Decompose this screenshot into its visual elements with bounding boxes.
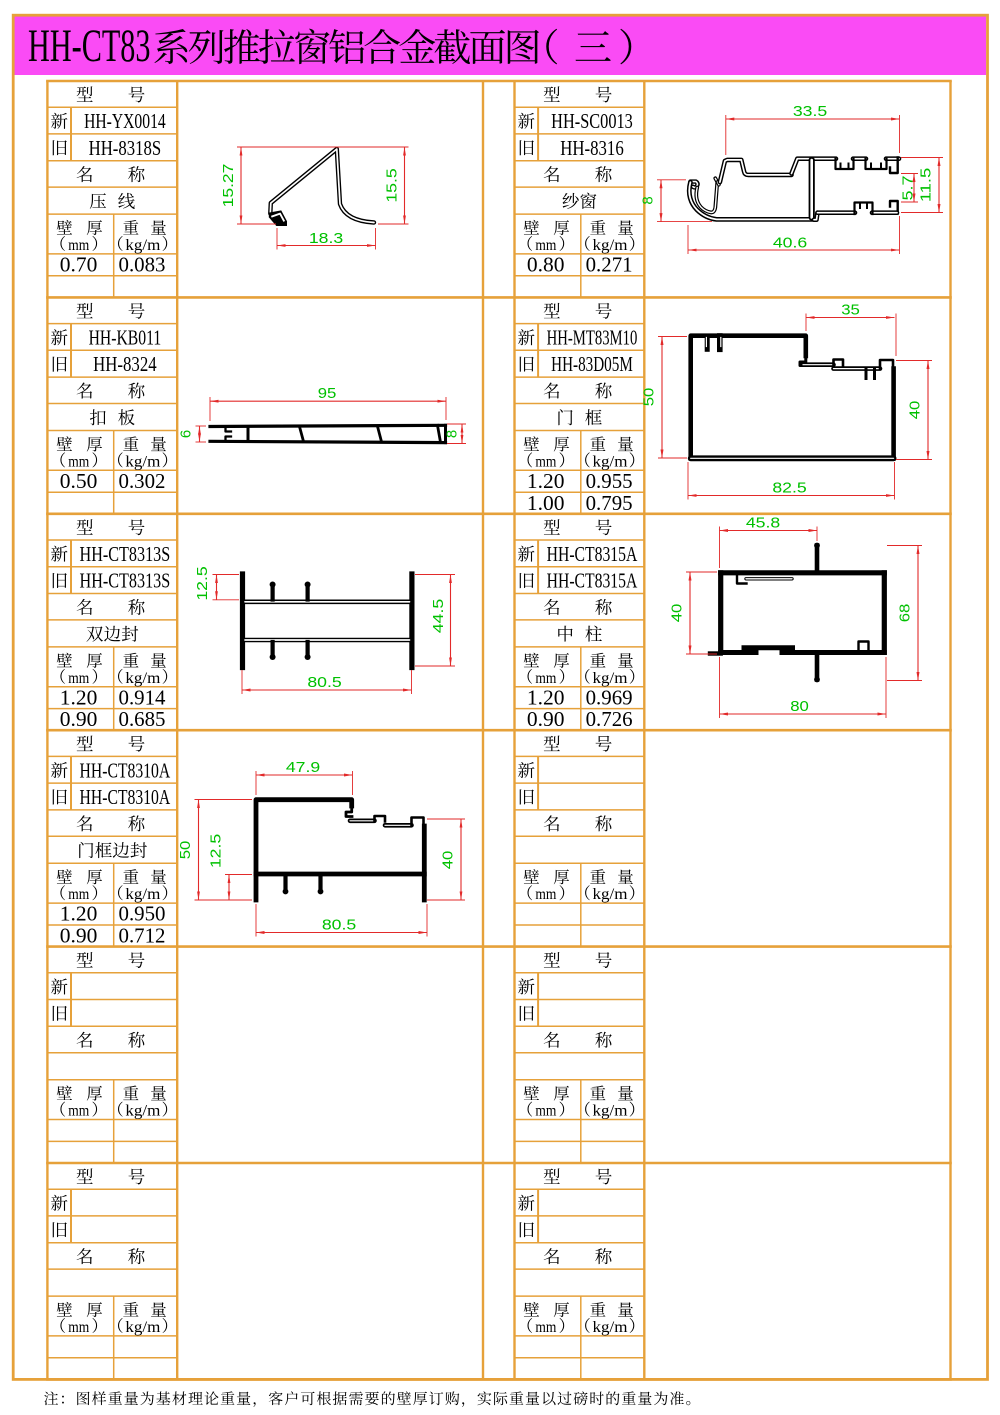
svg-text:kg/m: kg/m xyxy=(125,1319,161,1336)
svg-text:11.5: 11.5 xyxy=(918,168,935,202)
svg-text:HH-MT83M10: HH-MT83M10 xyxy=(547,326,638,350)
svg-text:kg/m: kg/m xyxy=(593,670,629,687)
svg-text:kg/m: kg/m xyxy=(125,1103,161,1120)
svg-text:0.083: 0.083 xyxy=(119,253,166,277)
svg-text:95: 95 xyxy=(318,385,337,402)
svg-text:44.5: 44.5 xyxy=(430,599,447,633)
svg-text:0.914: 0.914 xyxy=(119,685,166,709)
svg-text:40: 40 xyxy=(669,604,686,623)
svg-text:0.795: 0.795 xyxy=(586,491,633,515)
svg-text:40.6: 40.6 xyxy=(773,235,807,252)
svg-text:15.27: 15.27 xyxy=(220,164,237,208)
svg-text:HH-CT8313S: HH-CT8313S xyxy=(80,542,171,566)
svg-text:kg/m: kg/m xyxy=(593,1103,629,1120)
svg-text:6: 6 xyxy=(178,430,195,438)
svg-text:HH-CT8315A: HH-CT8315A xyxy=(547,569,638,593)
svg-text:0.70: 0.70 xyxy=(60,253,98,277)
svg-text:1.00: 1.00 xyxy=(527,491,565,515)
svg-text:HH-KB011: HH-KB011 xyxy=(89,326,162,350)
svg-text:mm: mm xyxy=(535,1103,556,1120)
svg-text:5.7: 5.7 xyxy=(900,175,917,200)
svg-text:80: 80 xyxy=(790,698,809,715)
svg-text:HH-CT8310A: HH-CT8310A xyxy=(80,785,171,809)
svg-text:0.685: 0.685 xyxy=(119,707,166,731)
svg-text:12.5: 12.5 xyxy=(194,566,211,600)
svg-text:0.969: 0.969 xyxy=(586,685,633,709)
svg-text:mm: mm xyxy=(68,1103,89,1120)
svg-text:0.302: 0.302 xyxy=(119,469,166,493)
svg-text:kg/m: kg/m xyxy=(593,237,629,254)
svg-text:0.90: 0.90 xyxy=(527,707,565,731)
svg-text:mm: mm xyxy=(68,886,89,903)
svg-text:0.80: 0.80 xyxy=(527,253,565,277)
svg-text:12.5: 12.5 xyxy=(208,834,225,868)
svg-text:50: 50 xyxy=(641,388,658,407)
svg-text:0.50: 0.50 xyxy=(60,469,98,493)
svg-text:mm: mm xyxy=(535,1319,556,1336)
svg-text:1.20: 1.20 xyxy=(60,685,98,709)
svg-text:mm: mm xyxy=(68,670,89,687)
svg-text:mm: mm xyxy=(535,886,556,903)
svg-text:HH-CT8313S: HH-CT8313S xyxy=(80,569,171,593)
svg-text:0.955: 0.955 xyxy=(586,469,633,493)
svg-text:35: 35 xyxy=(841,302,860,319)
svg-text:0.271: 0.271 xyxy=(586,253,633,277)
svg-text:1.20: 1.20 xyxy=(527,469,565,493)
svg-text:HH-8316: HH-8316 xyxy=(560,136,624,160)
svg-text:kg/m: kg/m xyxy=(593,886,629,903)
svg-text:0.726: 0.726 xyxy=(586,707,633,731)
svg-text:HH-8318S: HH-8318S xyxy=(89,136,162,160)
svg-text:80.5: 80.5 xyxy=(322,917,356,934)
svg-text:33.5: 33.5 xyxy=(793,103,827,120)
svg-text:kg/m: kg/m xyxy=(125,453,161,470)
svg-text:68: 68 xyxy=(897,604,914,623)
svg-text:15.5: 15.5 xyxy=(384,168,401,202)
svg-text:40: 40 xyxy=(907,401,924,420)
svg-text:80.5: 80.5 xyxy=(307,674,341,691)
svg-text:50: 50 xyxy=(177,841,194,860)
svg-text:kg/m: kg/m xyxy=(125,886,161,903)
svg-text:45.8: 45.8 xyxy=(746,515,780,532)
svg-text:HH-YX0014: HH-YX0014 xyxy=(84,109,166,133)
svg-text:mm: mm xyxy=(535,237,556,254)
svg-text:mm: mm xyxy=(535,670,556,687)
svg-text:kg/m: kg/m xyxy=(593,1319,629,1336)
svg-text:HH-CT8315A: HH-CT8315A xyxy=(547,542,638,566)
svg-text:0.712: 0.712 xyxy=(119,924,166,948)
svg-text:8: 8 xyxy=(444,430,461,438)
svg-text:kg/m: kg/m xyxy=(125,237,161,254)
svg-text:kg/m: kg/m xyxy=(593,453,629,470)
svg-text:8: 8 xyxy=(640,196,657,204)
svg-text:0.90: 0.90 xyxy=(60,924,98,948)
svg-text:18.3: 18.3 xyxy=(309,230,343,247)
svg-text:1.20: 1.20 xyxy=(60,902,98,926)
svg-text:1.20: 1.20 xyxy=(527,685,565,709)
svg-text:HH-8324: HH-8324 xyxy=(93,352,157,376)
svg-text:82.5: 82.5 xyxy=(772,480,806,497)
svg-text:mm: mm xyxy=(68,237,89,254)
svg-text:kg/m: kg/m xyxy=(125,670,161,687)
svg-text:HH-CT8310A: HH-CT8310A xyxy=(80,758,171,782)
svg-text:mm: mm xyxy=(535,453,556,470)
svg-text:HH-SC0013: HH-SC0013 xyxy=(551,109,633,133)
svg-text:47.9: 47.9 xyxy=(286,759,320,776)
svg-text:mm: mm xyxy=(68,453,89,470)
svg-text:40: 40 xyxy=(440,851,457,870)
svg-text:0.90: 0.90 xyxy=(60,707,98,731)
svg-text:mm: mm xyxy=(68,1319,89,1336)
svg-text:HH-83D05M: HH-83D05M xyxy=(551,352,633,376)
svg-text:0.950: 0.950 xyxy=(119,902,166,926)
svg-text:HH-CT83: HH-CT83 xyxy=(28,20,151,72)
